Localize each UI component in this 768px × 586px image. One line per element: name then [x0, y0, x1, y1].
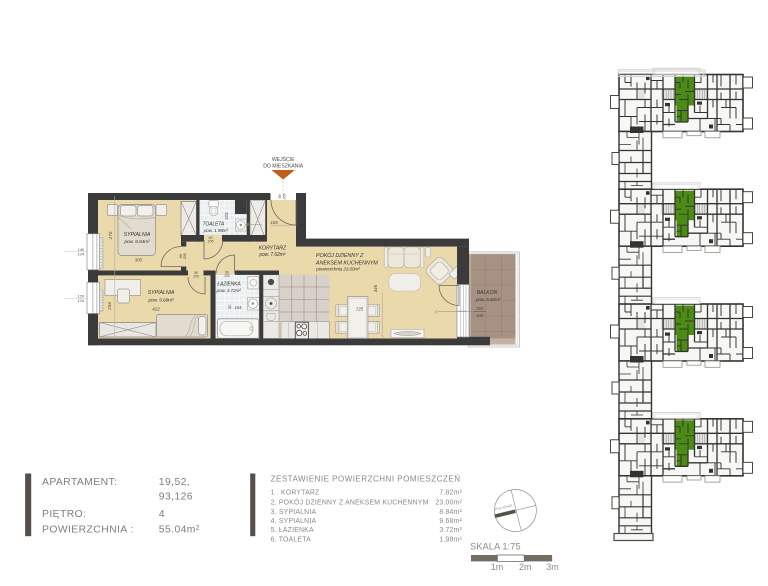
svg-text:BALKON: BALKON	[477, 290, 498, 296]
svg-text:23.00m²: 23.00m²	[435, 500, 462, 507]
svg-text:POKÓJ DZIENNY Z: POKÓJ DZIENNY Z	[316, 252, 364, 259]
svg-text:3m: 3m	[546, 562, 559, 572]
svg-text:6. TOALETA: 6. TOALETA	[271, 536, 312, 543]
svg-text:pow. 3.72m²: pow. 3.72m²	[215, 288, 241, 293]
svg-text:WEJŚCIE: WEJŚCIE	[272, 155, 295, 163]
svg-text:205: 205	[192, 274, 199, 278]
svg-text:346: 346	[373, 284, 378, 292]
svg-text:pow. 9.68m²: pow. 9.68m²	[147, 298, 174, 304]
svg-text:55.04m²: 55.04m²	[159, 525, 200, 536]
svg-text:93,126: 93,126	[159, 492, 193, 503]
svg-text:300: 300	[476, 306, 484, 311]
svg-text:205: 205	[283, 194, 287, 201]
svg-text:8.84m²: 8.84m²	[439, 509, 462, 516]
svg-text:APARTAMENT:: APARTAMENT:	[42, 477, 117, 488]
svg-text:SYPIALNIA: SYPIALNIA	[148, 290, 175, 296]
svg-text:PIĘTRO:: PIĘTRO:	[42, 509, 86, 520]
svg-text:ŁAZIENKA: ŁAZIENKA	[217, 282, 241, 288]
svg-text:5. ŁAZIENKA: 5. ŁAZIENKA	[271, 527, 314, 534]
svg-text:ZESTAWIENIE POWIERZCHNI POMIE: ZESTAWIENIE POWIERZCHNI POMIESZCZEŃ	[271, 475, 461, 484]
svg-text:ANEKSEM KUCHENNYM: ANEKSEM KUCHENNYM	[315, 260, 378, 266]
svg-text:92: 92	[227, 304, 232, 309]
svg-text:124: 124	[78, 251, 85, 256]
svg-text:1m: 1m	[491, 562, 504, 572]
svg-text:422: 422	[152, 306, 160, 311]
svg-text:4: 4	[159, 509, 165, 520]
svg-text:234: 234	[107, 302, 112, 311]
svg-text:3. SYPIALNIA: 3. SYPIALNIA	[271, 509, 317, 516]
svg-text:4. SYPIALNIA: 4. SYPIALNIA	[271, 518, 317, 525]
svg-text:2. POKÓJ DZIENNY Z ANEKSEM KUC: 2. POKÓJ DZIENNY Z ANEKSEM KUCHENNYM	[271, 498, 429, 507]
svg-text:TOALETA: TOALETA	[203, 222, 225, 228]
svg-text:124: 124	[78, 298, 85, 303]
svg-text:pow. 8.84m²: pow. 8.84m²	[123, 239, 150, 245]
svg-text:pow. 1.98m²: pow. 1.98m²	[203, 228, 229, 233]
svg-text:KORYTARZ: KORYTARZ	[259, 245, 287, 251]
svg-text:SKALA 1:75: SKALA 1:75	[470, 541, 521, 552]
svg-text:205: 205	[223, 274, 230, 278]
svg-text:9.68m²: 9.68m²	[439, 518, 462, 525]
svg-text:3.72m²: 3.72m²	[439, 527, 462, 534]
svg-text:DO MIESZKANIA: DO MIESZKANIA	[263, 164, 304, 170]
svg-text:POWIERZCHNIA :: POWIERZCHNIA :	[42, 525, 134, 536]
svg-text:205: 205	[183, 253, 187, 260]
svg-text:2m: 2m	[519, 562, 532, 572]
svg-text:270: 270	[108, 231, 113, 240]
svg-text:7.82m²: 7.82m²	[439, 490, 462, 497]
svg-text:305: 305	[135, 258, 143, 263]
svg-text:1.98m²: 1.98m²	[439, 536, 462, 543]
svg-text:90: 90	[278, 195, 282, 199]
svg-text:205: 205	[207, 240, 214, 244]
svg-text:339: 339	[476, 313, 484, 318]
svg-text:165: 165	[270, 220, 278, 225]
svg-text:19,52,: 19,52,	[159, 477, 190, 488]
svg-text:powierzchnia 23.00m²: powierzchnia 23.00m²	[315, 267, 360, 272]
svg-text:pow. 5.60m²: pow. 5.60m²	[475, 297, 501, 302]
svg-text:103: 103	[224, 212, 229, 220]
svg-text:SYPIALNIA: SYPIALNIA	[124, 232, 151, 238]
svg-text:164: 164	[235, 305, 243, 310]
svg-text:pow. 7.62m²: pow. 7.62m²	[258, 252, 285, 258]
svg-text:1 . KORYTARZ: 1 . KORYTARZ	[271, 490, 320, 497]
svg-text:725: 725	[356, 306, 364, 311]
